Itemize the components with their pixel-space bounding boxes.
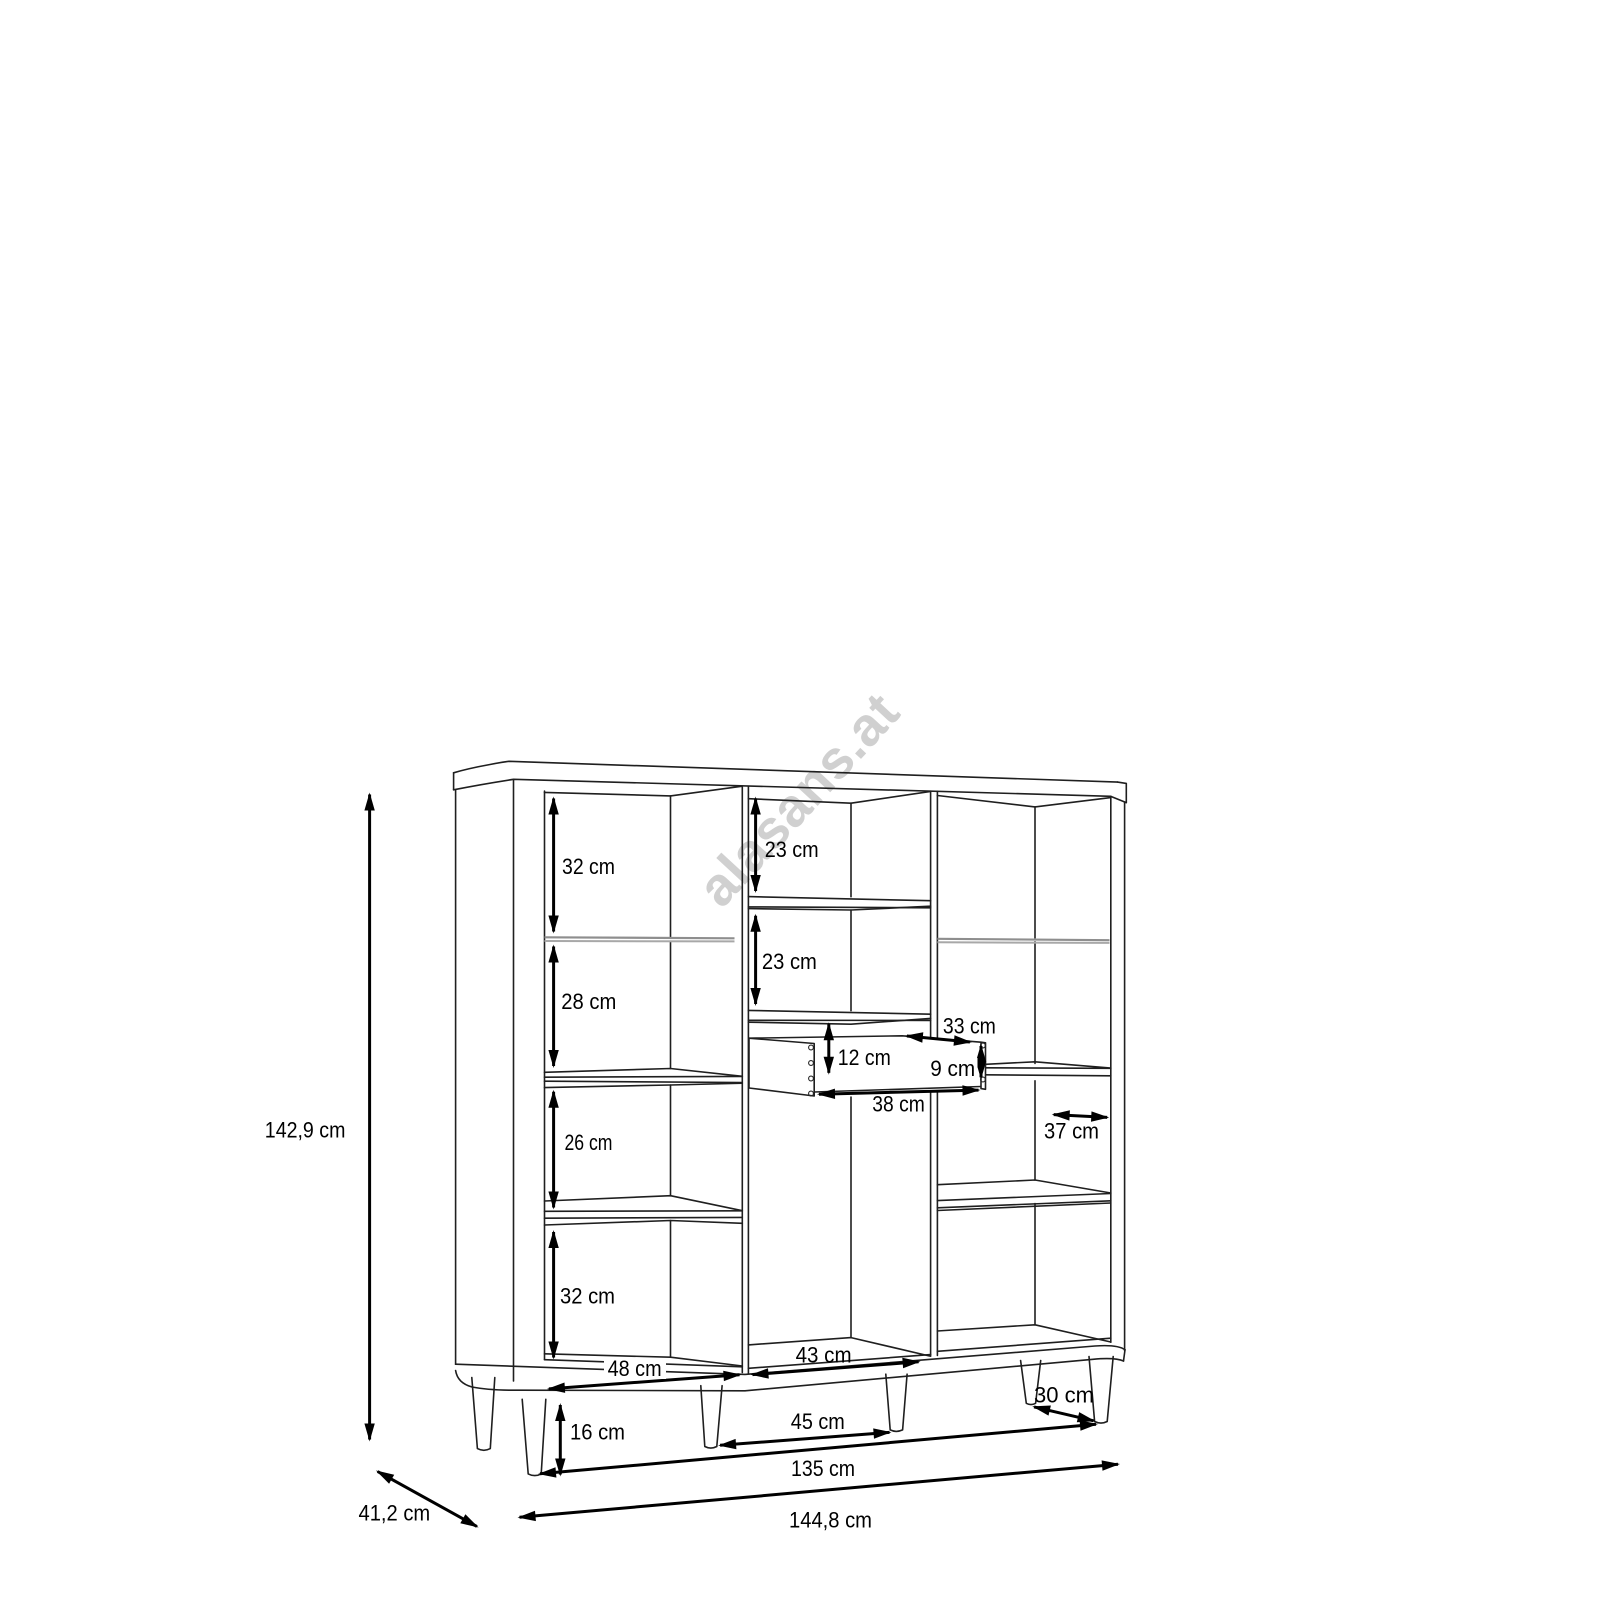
svg-text:48 cm: 48 cm: [608, 1356, 662, 1381]
svg-text:37 cm: 37 cm: [1044, 1119, 1099, 1144]
svg-text:23 cm: 23 cm: [762, 949, 817, 974]
svg-text:28 cm: 28 cm: [561, 989, 616, 1014]
svg-text:32 cm: 32 cm: [560, 1284, 615, 1309]
svg-text:12 cm: 12 cm: [838, 1045, 891, 1070]
svg-text:45 cm: 45 cm: [791, 1409, 845, 1434]
svg-text:135 cm: 135 cm: [791, 1456, 855, 1481]
svg-text:16 cm: 16 cm: [570, 1420, 625, 1445]
svg-text:144,8 cm: 144,8 cm: [789, 1508, 872, 1533]
svg-text:142,9 cm: 142,9 cm: [265, 1118, 346, 1143]
svg-text:23 cm: 23 cm: [765, 837, 819, 862]
svg-text:30 cm: 30 cm: [1034, 1383, 1094, 1408]
svg-text:41,2 cm: 41,2 cm: [359, 1501, 431, 1526]
svg-text:26 cm: 26 cm: [565, 1130, 613, 1155]
svg-text:38 cm: 38 cm: [872, 1092, 925, 1117]
svg-text:9 cm: 9 cm: [930, 1056, 975, 1081]
svg-text:33 cm: 33 cm: [943, 1014, 996, 1039]
svg-text:32 cm: 32 cm: [562, 854, 615, 879]
svg-text:43 cm: 43 cm: [796, 1343, 852, 1368]
